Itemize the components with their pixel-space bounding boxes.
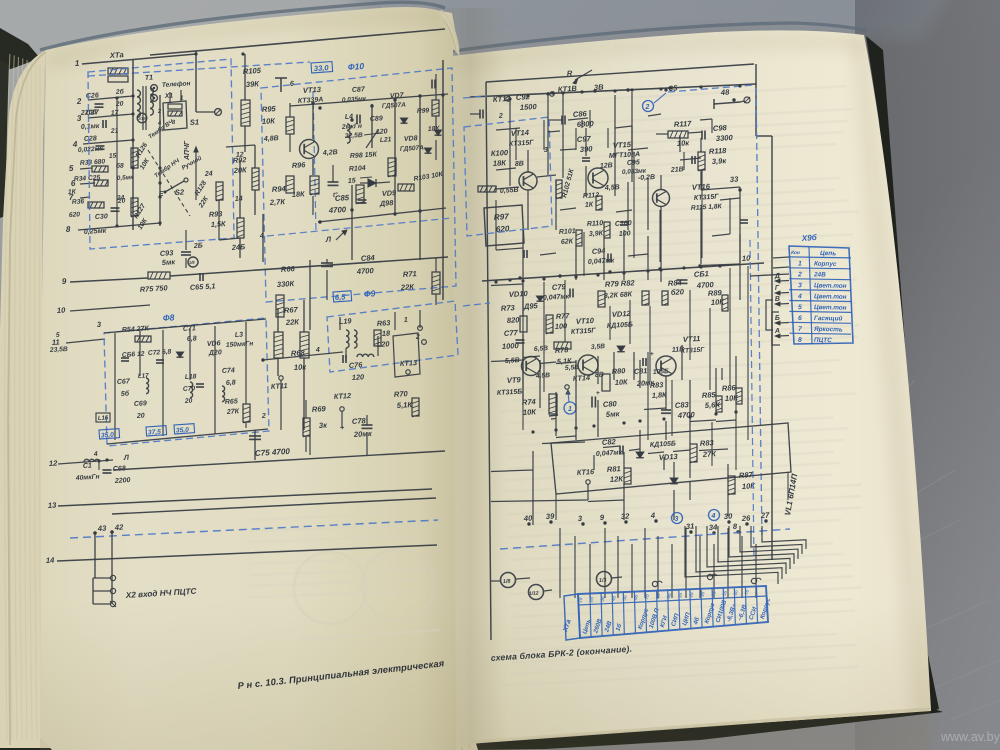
svg-text:С28: С28 [84,135,97,143]
svg-text:4700: 4700 [356,266,375,276]
svg-text:R75 750: R75 750 [140,283,168,294]
svg-text:Х9б: Х9б [801,233,818,243]
svg-text:12: 12 [236,152,244,159]
svg-text:R79 R82: R79 R82 [605,278,636,289]
svg-text:L16: L16 [98,415,109,422]
svg-text:6,8: 6,8 [187,335,197,343]
svg-text:С68: С68 [113,465,126,473]
svg-text:6: 6 [798,315,802,322]
svg-text:13: 13 [48,500,58,510]
svg-text:2: 2 [261,413,266,420]
svg-text:СБ1: СБ1 [694,269,710,279]
svg-text:4: 4 [315,347,320,354]
svg-text:С74: С74 [222,367,235,375]
svg-text:Цвет.тон: Цвет.тон [814,282,847,290]
svg-text:Е: Е [159,191,164,198]
svg-text:Ф8: Ф8 [163,312,175,323]
svg-text:1К: 1К [68,188,77,196]
svg-text:26: 26 [741,513,752,523]
svg-text:3В: 3В [594,82,605,92]
svg-text:4: 4 [93,451,98,458]
svg-text:48: 48 [720,87,731,97]
svg-text:S1: S1 [190,117,200,127]
svg-text:ГД507А: ГД507А [382,102,407,110]
svg-text:С87: С87 [352,86,366,94]
svg-text:С89: С89 [370,115,383,123]
svg-text:С95: С95 [627,159,640,167]
svg-text:VT9: VT9 [507,375,522,385]
svg-text:R71: R71 [403,269,417,279]
svg-text:24В: 24В [813,271,826,278]
svg-text:ХТа: ХТа [109,50,124,60]
svg-text:С70: С70 [183,385,196,393]
svg-text:-0,2В: -0,2В [638,174,656,182]
svg-text:Ф10: Ф10 [348,61,365,72]
svg-text:КТ1В: КТ1В [558,84,578,94]
svg-text:32: 32 [621,511,631,521]
svg-text:5мк: 5мк [606,409,621,419]
svg-text:10К: 10К [523,407,538,417]
svg-text:L19: L19 [339,316,353,326]
svg-text:10к: 10к [294,362,308,372]
svg-text:6,8: 6,8 [226,379,236,387]
svg-text:VT11: VT11 [683,334,701,344]
svg-text:Корпус: Корпус [814,261,837,268]
svg-text:L3: L3 [235,332,244,339]
svg-text:VD8: VD8 [404,135,418,143]
svg-text:1/8: 1/8 [189,260,196,265]
svg-text:С69: С69 [134,400,147,408]
svg-text:35: 35 [669,83,679,93]
svg-text:К100: К100 [491,148,510,158]
svg-text:5б: 5б [121,389,130,398]
svg-text:20мк: 20мк [353,429,373,439]
svg-text:24Б: 24Б [231,242,246,252]
svg-text:23,5В: 23,5В [49,346,68,354]
svg-text:18: 18 [382,328,392,338]
svg-text:2: 2 [76,97,83,106]
svg-text:820: 820 [507,315,521,325]
svg-text:30: 30 [724,511,734,521]
svg-text:R104: R104 [349,165,366,173]
svg-text:1/1а: 1/1а [138,115,147,121]
svg-text:С65 5,1: С65 5,1 [190,281,216,292]
svg-text:2: 2 [797,271,802,278]
svg-text:VD13: VD13 [659,452,679,462]
svg-text:КТ12: КТ12 [334,391,352,401]
svg-text:С97: С97 [577,134,592,144]
svg-text:21В: 21В [670,166,684,174]
svg-text:100: 100 [619,230,631,238]
svg-text:33,0: 33,0 [314,63,330,73]
svg-text:VD12: VD12 [612,309,632,319]
svg-text:12В: 12В [600,162,613,170]
svg-text:Ф9: Ф9 [364,288,376,299]
svg-text:www.av.by: www.av.by [940,730,1000,744]
svg-text:1К: 1К [585,201,594,209]
svg-text:22К: 22К [285,317,301,327]
svg-text:С72 6,8: С72 6,8 [148,349,172,357]
svg-text:Цвет.тон: Цвет.тон [814,293,847,301]
svg-text:35,0: 35,0 [176,427,190,435]
svg-text:15: 15 [109,153,117,160]
svg-text:22,5В: 22,5В [344,132,363,140]
svg-text:Д95: Д95 [523,301,539,311]
svg-text:5,5В: 5,5В [565,364,580,372]
svg-text:R110: R110 [587,220,604,228]
svg-text:5: 5 [56,332,60,339]
svg-text:10К: 10К [615,377,629,387]
svg-text:120: 120 [352,372,365,382]
svg-text:8: 8 [798,337,802,344]
svg-text:6,5В: 6,5В [534,345,549,353]
svg-text:VT13: VT13 [303,85,322,95]
svg-text:2: 2 [415,334,420,341]
svg-text:R65: R65 [225,398,238,406]
svg-text:L21: L21 [380,136,392,144]
svg-text:С86: С86 [573,109,588,119]
svg-text:1/12: 1/12 [529,590,539,597]
svg-text:120: 120 [376,128,388,136]
svg-text:R95: R95 [262,104,277,114]
svg-text:КТ11: КТ11 [271,381,288,391]
svg-text:10к: 10к [677,138,691,148]
svg-text:Цвет.тон: Цвет.тон [814,304,847,312]
svg-text:R94: R94 [272,184,287,194]
svg-text:С76: С76 [349,360,364,370]
svg-text:5мк: 5мк [162,257,177,267]
svg-text:С84: С84 [361,253,376,263]
svg-text:б20: б20 [671,287,685,297]
svg-text:R86: R86 [722,383,737,393]
svg-text:1: 1 [568,406,572,413]
svg-text:С80: С80 [603,399,618,409]
svg-text:27К: 27К [226,408,240,416]
svg-text:27: 27 [760,510,771,520]
svg-text:20: 20 [115,101,124,109]
svg-text:31: 31 [686,521,695,530]
svg-text:5,1К: 5,1К [397,400,414,410]
svg-text:VD9: VD9 [382,188,398,198]
svg-text:R36: R36 [72,198,85,206]
svg-text:2б: 2б [115,87,125,96]
svg-text:R70: R70 [394,389,409,399]
svg-text:39К: 39К [246,79,261,89]
svg-text:1: 1 [404,317,408,324]
svg-text:42: 42 [114,522,125,532]
svg-text:С71: С71 [183,325,196,333]
svg-text:R118: R118 [709,146,728,156]
svg-text:R73: R73 [501,303,516,313]
svg-text:2мкГн: 2мкГн [341,123,362,131]
svg-text:Х1: Х1 [164,92,174,100]
svg-text:С30: С30 [95,213,108,221]
svg-text:7: 7 [798,326,802,333]
svg-text:12К: 12К [610,474,625,484]
svg-text:L18: L18 [185,373,197,381]
svg-text:R69: R69 [312,404,327,414]
svg-text:4,5В: 4,5В [604,184,620,192]
svg-text:2Б: 2Б [193,242,203,250]
svg-text:20: 20 [136,413,145,421]
svg-text:1/8: 1/8 [503,579,511,585]
svg-text:4: 4 [797,293,802,300]
svg-text:R96: R96 [292,160,307,170]
svg-text:ГД507А: ГД507А [400,145,425,153]
svg-text:VD10: VD10 [509,289,529,299]
svg-text:5: 5 [798,304,802,311]
svg-text:39: 39 [546,511,556,521]
svg-text:КТ16: КТ16 [577,467,596,477]
svg-text:S2: S2 [175,187,186,197]
svg-text:+: + [596,390,600,397]
svg-text:22К: 22К [400,282,416,292]
svg-text:Яркость: Яркость [813,326,843,334]
svg-text:t°: t° [333,191,339,199]
svg-text:105Б: 105Б [653,368,670,376]
svg-text:6,5: 6,5 [335,292,347,302]
svg-text:330К: 330К [277,279,296,289]
svg-text:R85: R85 [702,390,717,400]
svg-text:VD7: VD7 [390,92,405,100]
svg-text:R83: R83 [650,380,664,390]
svg-text:3: 3 [675,516,679,523]
svg-text:4700: 4700 [328,205,347,215]
svg-text:3: 3 [798,282,802,289]
svg-text:VT16: VT16 [692,182,711,192]
svg-text:8В: 8В [515,160,524,168]
svg-text:62К: 62К [561,238,574,246]
svg-text:R101: R101 [559,228,576,236]
svg-text:12: 12 [49,458,59,468]
svg-text:33: 33 [730,174,740,184]
svg-text:Д98: Д98 [379,198,395,208]
svg-text:Кон: Кон [791,250,800,256]
svg-text:4: 4 [259,233,264,240]
svg-text:R66: R66 [281,264,296,274]
svg-text:10К: 10К [711,297,726,307]
svg-text:1500: 1500 [520,102,538,112]
svg-text:ПЦТС: ПЦТС [814,337,832,344]
svg-text:6800: 6800 [577,119,595,129]
svg-text:4700: 4700 [677,410,696,420]
svg-text:2: 2 [645,104,650,111]
svg-text:0,25мк: 0,25мк [84,228,107,236]
svg-text:10К: 10К [742,481,757,491]
svg-text:4,8В: 4,8В [263,135,279,143]
svg-text:R117: R117 [674,119,693,129]
svg-text:С98: С98 [713,123,728,133]
svg-text:VT10: VT10 [576,316,595,326]
svg-text:4: 4 [711,513,716,520]
svg-text:R93: R93 [209,209,223,219]
svg-text:VD6: VD6 [207,340,221,348]
svg-text:3,9К: 3,9К [589,230,604,238]
svg-text:17: 17 [111,110,119,117]
svg-text:2200: 2200 [114,477,131,485]
svg-text:R99: R99 [417,107,430,115]
svg-text:Цепь: Цепь [820,250,836,257]
svg-text:КТ315Г: КТ315Г [681,347,706,355]
svg-text:40: 40 [523,513,534,523]
svg-text:620: 620 [496,224,511,234]
svg-text:VT14: VT14 [511,128,530,138]
svg-text:С1: С1 [83,462,92,470]
svg-text:0,1мк: 0,1мк [81,123,100,131]
svg-text:10К: 10К [262,116,277,126]
svg-text:14: 14 [46,555,56,565]
svg-text:2,7К: 2,7К [269,197,287,207]
svg-text:4,2В: 4,2В [322,149,338,157]
svg-text:3300: 3300 [716,133,734,143]
svg-text:0,5мк: 0,5мк [117,174,135,182]
svg-text:35,0: 35,0 [101,432,115,440]
svg-text:620: 620 [69,211,81,219]
svg-text:15: 15 [348,178,356,185]
svg-text:43: 43 [97,523,108,533]
svg-text:18К: 18К [493,158,508,168]
svg-text:R77: R77 [556,311,571,321]
svg-text:С77: С77 [504,328,519,338]
svg-text:КТ13: КТ13 [400,358,418,368]
svg-text:1,8К: 1,8К [652,390,668,400]
svg-text:1/3: 1/3 [599,578,607,584]
svg-text:1: 1 [798,261,802,268]
svg-text:R81: R81 [607,464,621,474]
svg-text:С83: С83 [675,400,690,410]
svg-text:24: 24 [204,171,213,179]
svg-text:С67: С67 [117,378,131,386]
svg-text:3,9к: 3,9к [712,156,728,166]
svg-text:10: 10 [57,305,67,315]
svg-text:20: 20 [184,398,193,406]
svg-text:18К: 18К [428,125,441,133]
svg-text:37,5: 37,5 [148,429,162,437]
svg-text:АПЧГ: АПЧГ [184,140,191,161]
svg-text:34: 34 [709,522,719,532]
svg-text:3,5В: 3,5В [591,343,606,351]
svg-text:R74: R74 [522,397,537,407]
svg-text:R63: R63 [377,318,391,328]
svg-text:R67: R67 [284,305,299,315]
svg-text:Т1: Т1 [145,75,154,82]
svg-text:8В: 8В [595,371,604,379]
svg-text:2: 2 [498,113,503,120]
svg-text:14: 14 [235,196,243,203]
svg-text:Гасящий: Гасящий [814,314,843,322]
